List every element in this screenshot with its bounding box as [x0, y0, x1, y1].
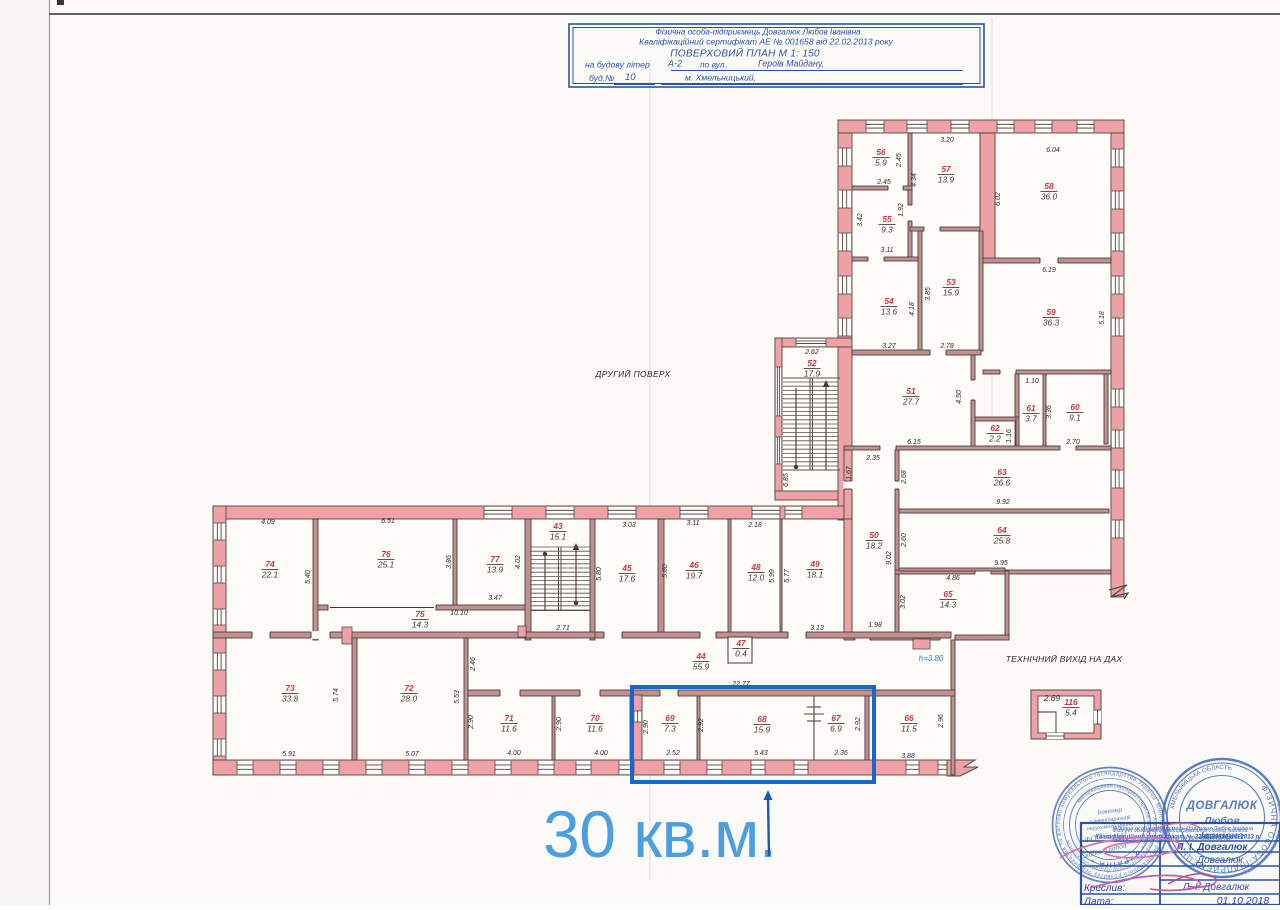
- svg-text:59: 59: [1046, 307, 1056, 317]
- svg-text:Л. I. Довгалюк: Л. I. Довгалюк: [1176, 842, 1249, 853]
- svg-text:51: 51: [906, 386, 916, 396]
- svg-text:01.10.2018: 01.10.2018: [1217, 895, 1270, 905]
- svg-text:4.50: 4.50: [956, 390, 963, 404]
- svg-text:9.95: 9.95: [994, 560, 1008, 567]
- svg-text:4.86: 4.86: [946, 575, 960, 582]
- svg-text:26.6: 26.6: [993, 478, 1011, 488]
- svg-text:6.02: 6.02: [995, 192, 1002, 206]
- svg-text:2.78: 2.78: [939, 343, 954, 350]
- svg-text:2.69: 2.69: [1043, 693, 1061, 703]
- svg-text:5.77: 5.77: [784, 568, 791, 583]
- svg-text:27.7: 27.7: [902, 397, 920, 407]
- svg-text:1.16: 1.16: [1006, 429, 1013, 443]
- svg-text:5.53: 5.53: [454, 690, 461, 704]
- svg-text:3.20: 3.20: [940, 137, 954, 144]
- svg-text:66: 66: [904, 713, 914, 723]
- svg-text:55.9: 55.9: [693, 662, 710, 672]
- svg-text:7.3: 7.3: [664, 724, 676, 734]
- svg-text:46: 46: [688, 560, 699, 570]
- svg-text:56: 56: [876, 147, 886, 157]
- svg-text:5.99: 5.99: [769, 569, 776, 583]
- svg-text:57: 57: [941, 164, 951, 174]
- svg-text:71: 71: [504, 713, 514, 723]
- svg-text:3.47: 3.47: [488, 595, 503, 602]
- svg-text:2.45: 2.45: [876, 179, 891, 186]
- svg-text:3.13: 3.13: [810, 625, 824, 632]
- svg-text:62: 62: [990, 423, 1000, 433]
- svg-text:h=3.80: h=3.80: [919, 654, 944, 663]
- svg-text:3.36: 3.36: [1046, 405, 1053, 419]
- svg-text:5.18: 5.18: [1099, 311, 1106, 325]
- svg-text:13.9: 13.9: [938, 175, 955, 185]
- svg-text:5.74: 5.74: [333, 688, 340, 702]
- svg-text:ДРУГИЙ ПОВЕРХ: ДРУГИЙ ПОВЕРХ: [594, 368, 670, 379]
- svg-text:1.98: 1.98: [868, 622, 882, 629]
- svg-text:13.6: 13.6: [881, 307, 898, 317]
- svg-text:19.7: 19.7: [686, 571, 703, 581]
- svg-text:44: 44: [695, 651, 706, 661]
- svg-text:2.92: 2.92: [855, 717, 862, 732]
- svg-text:72: 72: [404, 683, 414, 693]
- svg-text:4.18: 4.18: [909, 302, 916, 316]
- svg-text:5.07: 5.07: [405, 751, 420, 758]
- svg-text:по вул.: по вул.: [700, 60, 727, 70]
- svg-text:А-2: А-2: [667, 59, 682, 69]
- svg-text:ДОВГАЛЮК: ДОВГАЛЮК: [1186, 800, 1258, 812]
- svg-text:3.86: 3.86: [446, 555, 453, 569]
- svg-text:2.68: 2.68: [901, 470, 908, 485]
- svg-text:67: 67: [831, 713, 841, 723]
- svg-text:25.8: 25.8: [993, 536, 1011, 546]
- svg-text:61: 61: [1026, 403, 1036, 413]
- svg-text:5.4: 5.4: [1065, 708, 1077, 718]
- svg-text:63: 63: [997, 467, 1007, 477]
- svg-text:2.35: 2.35: [865, 455, 880, 462]
- svg-text:116: 116: [1064, 697, 1078, 707]
- svg-text:5.9: 5.9: [875, 158, 887, 168]
- svg-text:1.92: 1.92: [898, 203, 905, 217]
- svg-text:2.60: 2.60: [901, 533, 908, 548]
- svg-text:14.3: 14.3: [412, 620, 429, 630]
- svg-text:Фiзична особа-пiдприємець Довг: Фiзична особа-пiдприємець Довгалюк Любов…: [1112, 828, 1247, 834]
- svg-text:30 кв.м.: 30 кв.м.: [543, 797, 777, 871]
- svg-text:15.9: 15.9: [943, 288, 960, 298]
- svg-text:2.18: 2.18: [747, 522, 762, 529]
- svg-text:12.0: 12.0: [748, 573, 765, 583]
- svg-text:2.71: 2.71: [555, 625, 570, 632]
- svg-text:36.3: 36.3: [1043, 318, 1060, 328]
- svg-text:9.02: 9.02: [886, 551, 893, 565]
- svg-text:5.80: 5.80: [596, 567, 603, 581]
- svg-text:4.02: 4.02: [515, 555, 522, 569]
- svg-text:28.0: 28.0: [400, 694, 418, 704]
- svg-text:3.88: 3.88: [901, 753, 915, 760]
- svg-text:6.9: 6.9: [830, 724, 842, 734]
- svg-text:3.85: 3.85: [925, 287, 932, 301]
- svg-text:75: 75: [415, 609, 425, 619]
- svg-text:9.1: 9.1: [1069, 413, 1081, 423]
- svg-text:43: 43: [552, 521, 563, 531]
- svg-text:2.92: 2.92: [698, 718, 705, 733]
- svg-text:13.9: 13.9: [487, 565, 504, 575]
- svg-text:58: 58: [1044, 181, 1054, 191]
- svg-text:50: 50: [869, 530, 879, 540]
- svg-text:18.1: 18.1: [807, 570, 823, 580]
- svg-text:65: 65: [943, 589, 953, 599]
- svg-text:53: 53: [946, 277, 956, 287]
- svg-text:49: 49: [809, 559, 820, 569]
- svg-text:4.34: 4.34: [911, 173, 918, 187]
- svg-text:10.10: 10.10: [450, 610, 468, 617]
- svg-text:15.9: 15.9: [754, 725, 771, 735]
- svg-text:6.04: 6.04: [1046, 147, 1060, 154]
- svg-text:2.62: 2.62: [804, 349, 819, 356]
- svg-text:ТЕХНIЧНИЙ ВИХIД НА ДАХ: ТЕХНIЧНИЙ ВИХIД НА ДАХ: [1006, 653, 1123, 664]
- svg-text:6.85: 6.85: [783, 473, 790, 487]
- svg-text:70: 70: [590, 713, 600, 723]
- svg-text:69: 69: [665, 713, 675, 723]
- svg-text:36.0: 36.0: [1041, 192, 1058, 202]
- svg-text:Фiзична особа-пiдприємець До: Фiзична особа-пiдприємець Довгалюк Любов…: [655, 28, 861, 37]
- svg-text:2.96: 2.96: [938, 714, 945, 729]
- svg-text:4.09: 4.09: [261, 519, 275, 526]
- svg-text:48: 48: [750, 562, 761, 572]
- svg-text:2.2: 2.2: [988, 434, 1001, 444]
- svg-text:5.40: 5.40: [305, 570, 312, 584]
- svg-text:1.67: 1.67: [846, 465, 853, 480]
- svg-text:2.70: 2.70: [1065, 439, 1080, 446]
- svg-text:5.91: 5.91: [282, 751, 296, 758]
- svg-text:10: 10: [625, 72, 636, 83]
- svg-text:74: 74: [265, 559, 275, 569]
- svg-text:45: 45: [621, 563, 632, 573]
- svg-text:14.3: 14.3: [940, 600, 957, 610]
- svg-text:25.1: 25.1: [377, 560, 394, 570]
- svg-text:55: 55: [882, 214, 892, 224]
- svg-text:17.9: 17.9: [804, 369, 821, 379]
- svg-text:2.90: 2.90: [643, 720, 650, 735]
- svg-text:18.2: 18.2: [866, 541, 883, 551]
- svg-text:3.42: 3.42: [857, 213, 864, 227]
- svg-text:м. Хмельницький,: м. Хмельницький,: [685, 73, 756, 83]
- svg-text:3.02: 3.02: [900, 595, 907, 609]
- svg-text:6.15: 6.15: [907, 439, 921, 446]
- svg-text:2.36: 2.36: [833, 750, 848, 757]
- svg-text:3.11: 3.11: [880, 247, 893, 254]
- svg-text:68: 68: [757, 714, 767, 724]
- svg-text:2.45: 2.45: [896, 153, 903, 168]
- svg-text:77: 77: [490, 554, 500, 564]
- svg-text:Героїв Майдану,: Героїв Майдану,: [758, 59, 824, 69]
- svg-text:2.52: 2.52: [665, 750, 680, 757]
- svg-text:15.1: 15.1: [550, 532, 566, 542]
- svg-text:2.46: 2.46: [470, 657, 477, 672]
- svg-text:47: 47: [735, 638, 746, 648]
- svg-text:1.10: 1.10: [1025, 378, 1039, 385]
- svg-text:Дата:: Дата:: [1083, 897, 1113, 906]
- svg-text:буд.№: буд.№: [589, 73, 614, 83]
- svg-text:54: 54: [884, 296, 894, 306]
- svg-text:2.90: 2.90: [556, 717, 563, 732]
- svg-text:4.00: 4.00: [507, 750, 521, 757]
- svg-text:17.6: 17.6: [619, 574, 636, 584]
- svg-text:3.27: 3.27: [882, 343, 897, 350]
- svg-text:Довгалюк: Довгалюк: [1196, 855, 1244, 866]
- svg-text:9.3: 9.3: [881, 225, 893, 235]
- svg-text:5.43: 5.43: [754, 750, 768, 757]
- svg-text:11.6: 11.6: [587, 724, 603, 734]
- svg-text:на будову лiтер: на будову лiтер: [585, 60, 650, 70]
- svg-text:3.03: 3.03: [622, 522, 636, 529]
- svg-text:5.80: 5.80: [662, 564, 669, 578]
- svg-text:11.5: 11.5: [901, 724, 917, 734]
- svg-text:64: 64: [997, 525, 1007, 535]
- svg-text:33.8: 33.8: [282, 694, 299, 704]
- svg-text:3.11: 3.11: [686, 520, 699, 527]
- svg-text:52: 52: [807, 358, 817, 368]
- svg-text:22.1: 22.1: [261, 570, 278, 580]
- svg-text:73: 73: [285, 683, 295, 693]
- svg-text:76: 76: [381, 549, 391, 559]
- svg-text:9.92: 9.92: [996, 499, 1010, 506]
- svg-text:0.4: 0.4: [735, 649, 747, 659]
- svg-text:2.90: 2.90: [468, 715, 475, 730]
- svg-text:6.19: 6.19: [1042, 267, 1056, 274]
- svg-text:4.00: 4.00: [594, 750, 608, 757]
- svg-text:3.7: 3.7: [1025, 414, 1037, 424]
- svg-text:6.51: 6.51: [381, 518, 395, 525]
- svg-text:60: 60: [1070, 402, 1080, 412]
- svg-text:11.6: 11.6: [501, 724, 517, 734]
- svg-text:Квалiфiкацiйний сертифiкат А: Квалiфiкацiйний сертифiкат АЕ № 001658 в…: [639, 37, 893, 47]
